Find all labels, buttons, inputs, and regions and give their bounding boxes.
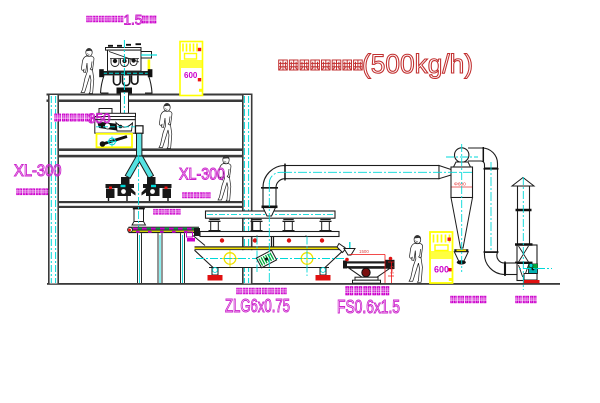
- svg-text:Φ600: Φ600: [454, 182, 466, 188]
- svg-text:(500kg/h): (500kg/h): [362, 49, 473, 79]
- svg-text:600: 600: [434, 265, 449, 275]
- svg-text:1.5: 1.5: [124, 13, 143, 28]
- svg-text:FS0.6x1.5: FS0.6x1.5: [337, 297, 400, 317]
- svg-text:1500: 1500: [359, 249, 369, 254]
- svg-text:945: 945: [390, 266, 396, 274]
- svg-text:350: 350: [88, 111, 111, 126]
- svg-text:XL-300: XL-300: [14, 161, 62, 180]
- svg-text:XL-300: XL-300: [179, 165, 225, 184]
- svg-text:600: 600: [184, 71, 198, 80]
- svg-text:ZLG6x0.75: ZLG6x0.75: [225, 296, 290, 316]
